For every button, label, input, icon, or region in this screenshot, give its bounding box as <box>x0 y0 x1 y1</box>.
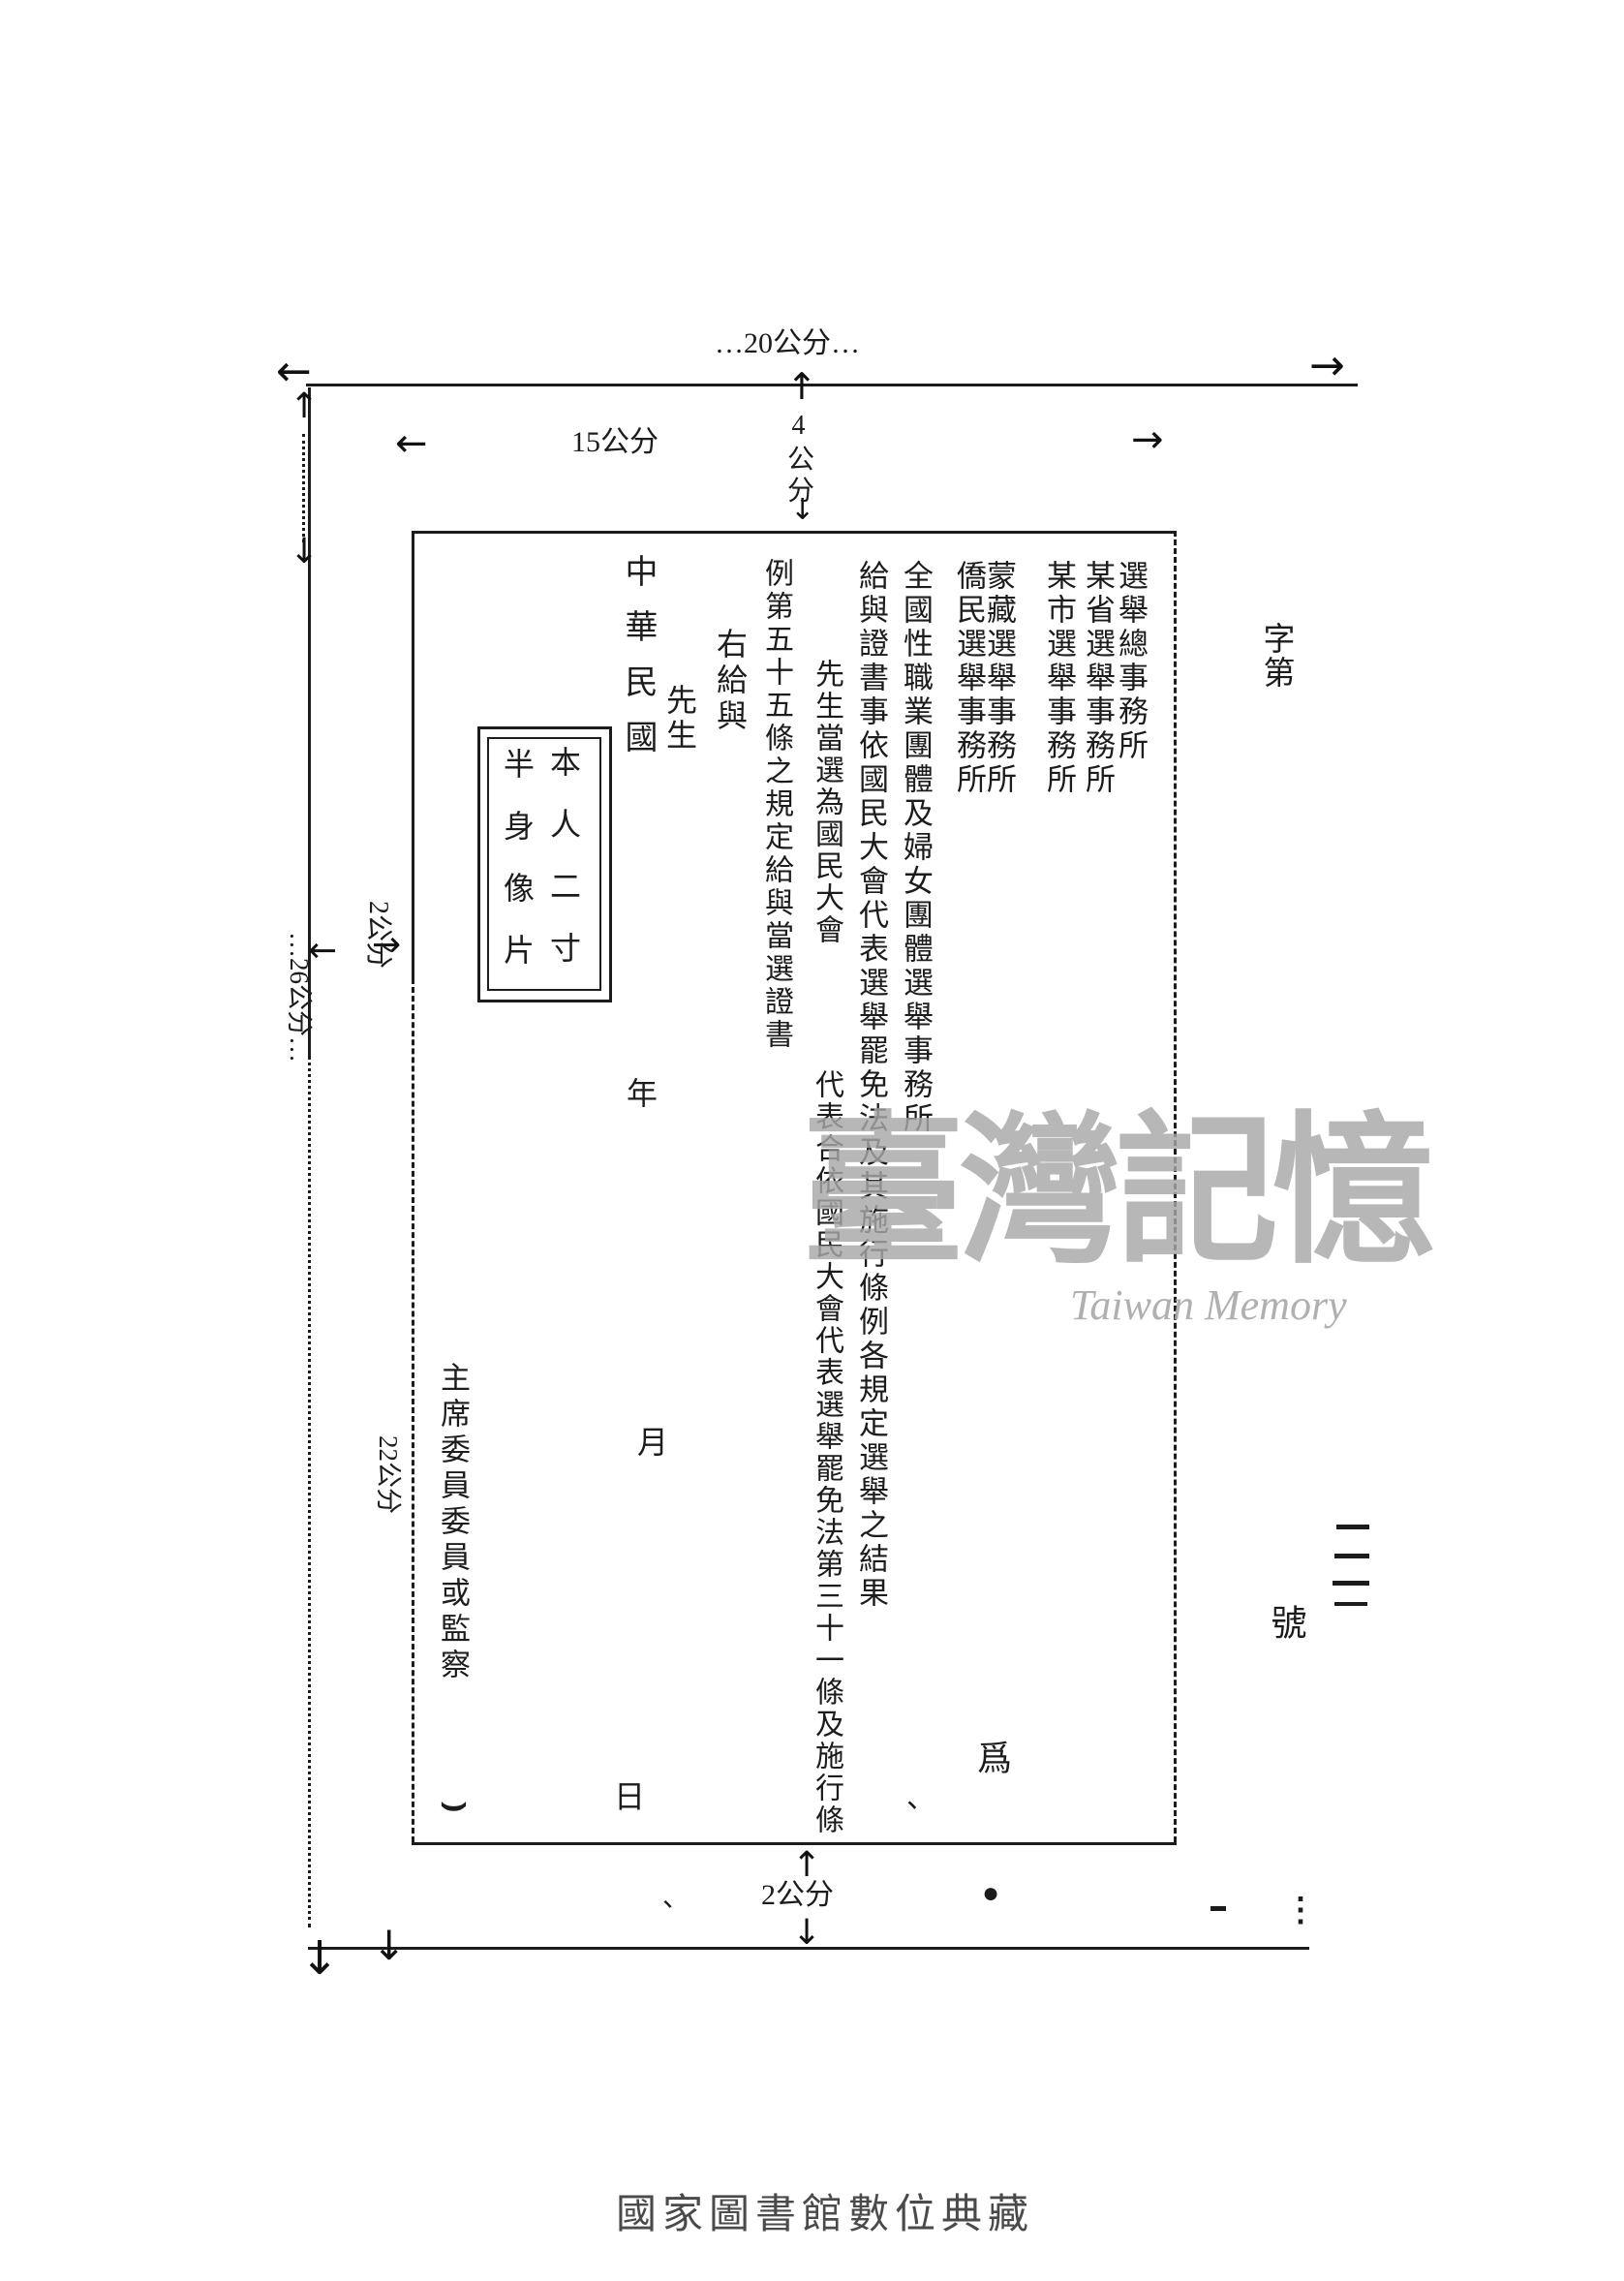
signature-column: 主席委員委員或監察 <box>438 1362 468 1684</box>
office-column-central: 選舉總事務所 <box>1116 560 1146 763</box>
arrow-left-icon: ← <box>395 424 428 463</box>
inner-height-label: 22公分 <box>375 1435 401 1514</box>
inner-top-border <box>412 531 1177 534</box>
arrow-down-icon: ↓ <box>290 535 319 570</box>
office-column-overseas: 僑民選舉事務所 <box>954 560 984 797</box>
outer-left-border-dotted <box>308 1056 311 1927</box>
office-column-occupational-womens: 全國性職業團體及婦女團體選舉事務所 <box>901 560 931 1136</box>
tally-mark <box>1333 1581 1369 1586</box>
photo-box-text-line2: 半身像片 <box>502 748 533 996</box>
left-margin-dimension-line <box>302 434 305 542</box>
date-day: 日 <box>612 1780 643 1811</box>
outer-top-border <box>306 384 1358 386</box>
award-column-wrap: 例第五十五條之規定給與當選證書 <box>761 558 790 1052</box>
inner-left-border <box>412 531 414 978</box>
seal-character: 爲 <box>974 1740 1009 1774</box>
tally-mark <box>1334 1554 1369 1558</box>
taiwan-memory-watermark-cjk: 臺灣記憶 <box>802 1112 1429 1275</box>
preamble-column: 給與證書事依國民大會代表選舉罷免法及其施行條例各規定選舉之結果 <box>856 560 886 1611</box>
arrow-down-icon: ↓ <box>372 1926 406 1966</box>
ink-dot-mark: ● <box>982 1879 999 1908</box>
serial-prefix: 字第 <box>1259 622 1291 690</box>
small-dash-mark <box>1210 1906 1226 1911</box>
left-margin-label: 2公分 <box>364 901 391 969</box>
tally-mark <box>1336 1525 1369 1529</box>
serial-suffix: 號 <box>1267 1604 1302 1640</box>
arrow-up-icon: ↑ <box>290 389 319 424</box>
inner-width-label: 15公分 <box>571 428 659 457</box>
bottom-margin-label: 2公分 <box>761 1881 834 1910</box>
date-month: 月 <box>635 1426 666 1457</box>
arrow-down-icon: ↓ <box>792 1916 821 1951</box>
honorific-column: 先生 <box>664 684 695 754</box>
tally-mark <box>1334 1602 1367 1606</box>
arrow-up-icon: ↑ <box>792 1848 821 1883</box>
office-column-city: 某市選舉事務所 <box>1044 560 1074 797</box>
tick-mark: 、 <box>906 1784 935 1813</box>
arrow-right-icon: → <box>1131 420 1164 459</box>
date-year: 年 <box>625 1077 656 1108</box>
arrow-up-icon: ↑ <box>786 368 817 405</box>
vertical-dots-mark: ⋮ <box>1284 1895 1317 1927</box>
office-column-mongolia-tibet: 蒙藏選舉事務所 <box>984 560 1014 797</box>
comma-mark: 、 <box>662 1885 689 1912</box>
scanned-document-page: ← → ↑ ↓ ← → ↑ ↓ ← → ↑ ↓ ↓ ↓ …20公分… 15公分 … <box>0 0 1624 2281</box>
hook-mark: ⌣ <box>440 1782 468 1825</box>
grant-column: 右給與 <box>715 628 746 735</box>
inner-left-border-dashed <box>412 978 414 1842</box>
outer-height-label: …26公分… <box>286 932 312 1063</box>
arrow-down-icon: ↓ <box>300 1935 339 1982</box>
office-column-province: 某省選舉事務所 <box>1083 560 1113 797</box>
date-era: 中華民國 <box>621 554 654 775</box>
photo-box-text-line1: 本人二寸 <box>548 746 579 994</box>
award-column-top: 先生當選為國民大會 <box>812 659 841 946</box>
archive-caption: 國家圖書館數位典藏 <box>616 2195 1034 2235</box>
top-margin-label: 4公分 <box>784 411 812 507</box>
outer-width-label: …20公分… <box>715 329 860 358</box>
arrow-right-icon: → <box>1309 345 1345 387</box>
taiwan-memory-watermark-latin: Taiwan Memory <box>1070 1284 1347 1327</box>
